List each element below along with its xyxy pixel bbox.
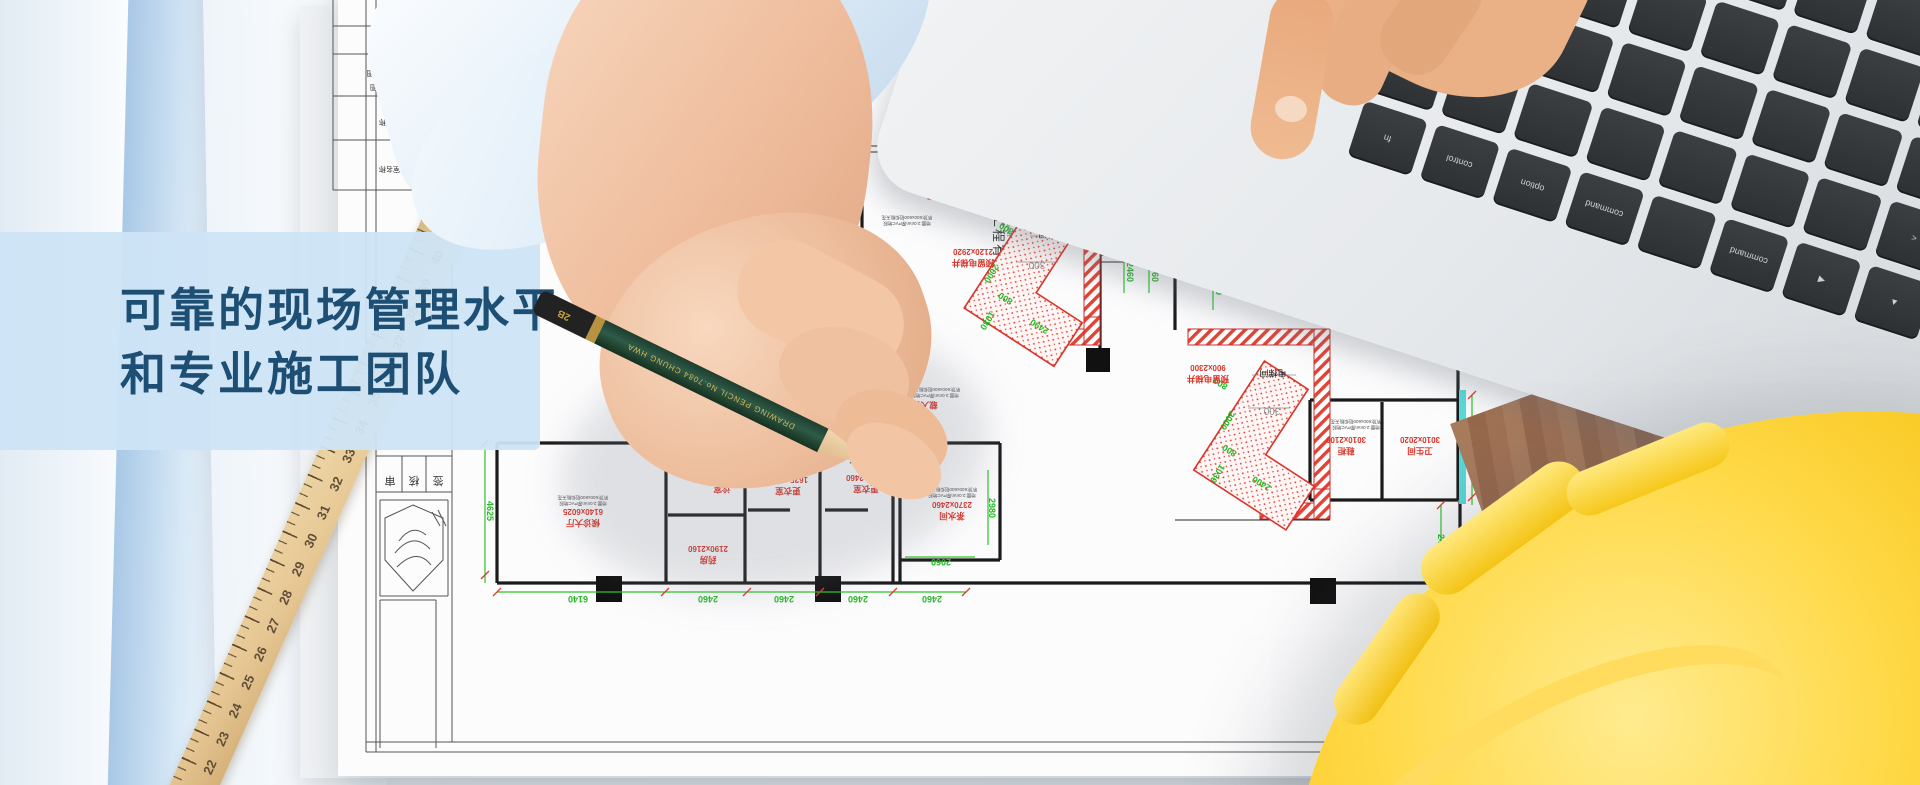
key-▲: ▲ [1853,265,1920,341]
key-blank [1844,47,1920,123]
ruler-number: 25 [236,669,260,696]
key-command: command [1564,171,1645,247]
key-blank [1772,24,1853,100]
ruler-number: 31 [312,499,336,526]
key-blank [1699,1,1780,77]
key-blank [1585,106,1666,182]
ruler-number: 24 [224,697,248,724]
key-blank [1802,177,1883,253]
ruler-number: 29 [287,556,311,583]
ruler-number: 22 [199,754,223,781]
ruler-number: 30 [299,528,323,555]
key-blank [1823,112,1904,188]
key-blank [1730,153,1811,229]
ruler-number: 23 [211,726,235,753]
key-blank [1657,130,1738,206]
key-◀: ◀ [1781,242,1862,318]
ruler-number: 28 [274,584,298,611]
key-blank [1865,0,1920,58]
key-command: command [1709,218,1790,294]
ruler-number: 26 [249,641,273,668]
key-blank [1513,83,1594,159]
ruler-number: 27 [262,612,286,639]
key-<: < [1874,200,1920,276]
ruler-number: 32 [325,471,349,498]
key-blank [1606,42,1687,118]
key-blank [1627,0,1708,53]
key-control: control [1420,124,1501,200]
key-blank [1678,65,1759,141]
hero-banner: HENGDUN ® 质量第一 服务至上 宁波恒盾医用工程有限公司 Ningbo … [0,0,1920,785]
key-blank [1636,195,1717,271]
pencil-grade: 2B [556,306,572,321]
key-blank [1751,89,1832,165]
key-option: option [1492,148,1573,224]
headline-line2: 和专业施工团队 [120,342,680,406]
